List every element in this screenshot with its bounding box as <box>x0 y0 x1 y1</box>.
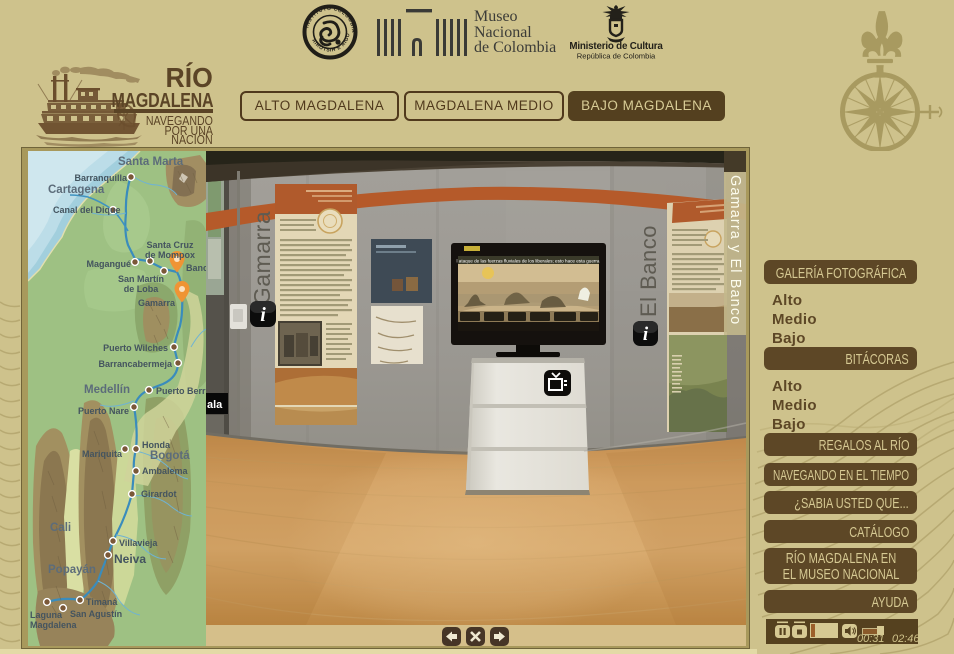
svg-text:Cali: Cali <box>50 522 71 534</box>
svg-text:Gamarra: Gamarra <box>138 298 176 308</box>
svg-text:Magdalena: Magdalena <box>30 620 78 630</box>
svg-text:Banco: Banco <box>186 263 206 273</box>
svg-text:Canal del Dique: Canal del Dique <box>53 205 121 215</box>
svg-text:Magangué: Magangué <box>86 259 131 269</box>
svg-text:Bogotá: Bogotá <box>150 450 190 462</box>
svg-text:Barrancabermeja: Barrancabermeja <box>98 359 173 369</box>
svg-text:Ambalema: Ambalema <box>142 466 189 476</box>
svg-text:El Banco: El Banco <box>636 225 661 317</box>
svg-text:Puerto Berrío: Puerto Berrío <box>156 386 206 396</box>
svg-text:Santa Cruz: Santa Cruz <box>146 240 194 250</box>
svg-text:de Loba: de Loba <box>124 284 159 294</box>
svg-text:Puerto Wilches: Puerto Wilches <box>103 343 168 353</box>
svg-text:Villavieja: Villavieja <box>119 538 158 548</box>
svg-text:Laguna: Laguna <box>30 610 63 620</box>
svg-text:Mariquita: Mariquita <box>82 449 123 459</box>
svg-text:Gamarra y El Banco: Gamarra y El Banco <box>727 175 743 325</box>
svg-text:Girardot: Girardot <box>141 489 177 499</box>
svg-text:Neiva: Neiva <box>114 552 146 566</box>
svg-text:Popayán: Popayán <box>48 564 96 576</box>
svg-text:Cartagena: Cartagena <box>48 184 105 196</box>
svg-text:ala: ala <box>207 399 223 411</box>
svg-text:Medellín: Medellín <box>84 384 130 396</box>
svg-text:Santa Marta: Santa Marta <box>118 156 184 168</box>
svg-text:i: i <box>643 324 649 345</box>
svg-text:República de Colombia: República de Colombia <box>577 52 656 61</box>
svg-text:i: i <box>260 304 266 326</box>
svg-text:Ministerio de Cultura: Ministerio de Cultura <box>569 41 663 52</box>
svg-text:Timaná: Timaná <box>86 597 118 607</box>
svg-text:de Mompox: de Mompox <box>145 250 195 260</box>
svg-text:Barranquilla: Barranquilla <box>74 173 128 183</box>
svg-text:San Martín: San Martín <box>118 274 164 284</box>
svg-text:Gamarra: Gamarra <box>249 211 275 305</box>
svg-text:San Agustín: San Agustín <box>70 609 122 619</box>
svg-text:Honda: Honda <box>142 440 171 450</box>
svg-text:l ataque de las fuerzas fluvia: l ataque de las fuerzas fluviales de los… <box>456 259 599 264</box>
svg-text:Puerto Nare: Puerto Nare <box>78 406 129 416</box>
